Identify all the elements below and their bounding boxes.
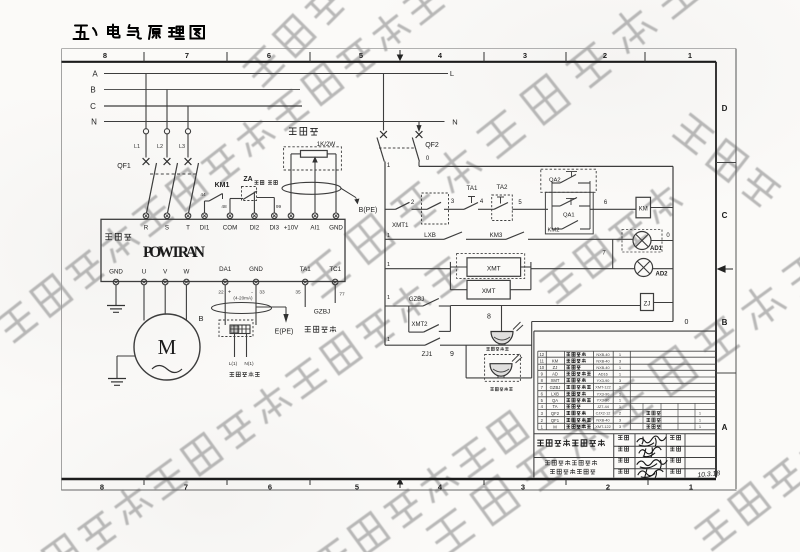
svg-text:M: M: [158, 335, 177, 359]
svg-text:5: 5: [359, 51, 363, 60]
svg-text:B: B: [722, 318, 728, 327]
svg-text:GND: GND: [109, 269, 123, 276]
svg-text:QA2: QA2: [549, 178, 561, 184]
svg-text:COM: COM: [223, 225, 237, 232]
svg-text:9: 9: [541, 371, 544, 376]
svg-text:N: N: [91, 118, 97, 127]
svg-text:8: 8: [487, 314, 491, 321]
svg-text:S: S: [165, 225, 169, 232]
svg-text:33: 33: [259, 290, 265, 296]
svg-text:KM3: KM3: [490, 232, 503, 239]
svg-text:3: 3: [619, 424, 622, 429]
svg-text:2: 2: [603, 51, 607, 60]
svg-text:5: 5: [518, 200, 522, 206]
svg-text:NXB-40: NXB-40: [596, 366, 609, 370]
svg-text:1: 1: [688, 51, 692, 60]
svg-text:3: 3: [521, 483, 525, 492]
svg-text:0: 0: [666, 233, 670, 239]
svg-text:ZJ: ZJ: [644, 302, 651, 308]
svg-text:TA1: TA1: [467, 185, 478, 192]
svg-text:AD2: AD2: [655, 272, 668, 278]
svg-text:AI1: AI1: [310, 225, 320, 232]
svg-text:QF2: QF2: [551, 411, 560, 416]
svg-text:A: A: [92, 70, 98, 79]
svg-text:TC1: TC1: [329, 266, 341, 273]
svg-text:DI1: DI1: [200, 225, 210, 232]
svg-text:U: U: [142, 269, 146, 276]
svg-text:22: 22: [218, 290, 224, 296]
svg-text:KM2: KM2: [548, 228, 560, 234]
svg-text:POWTRAN: POWTRAN: [143, 244, 205, 261]
svg-text:1: 1: [619, 398, 622, 403]
svg-text:4: 4: [541, 404, 544, 409]
svg-text:JZ7-44: JZ7-44: [597, 405, 609, 409]
svg-text:GZBJ: GZBJ: [409, 297, 424, 303]
svg-text:T: T: [186, 225, 190, 232]
svg-text:8: 8: [103, 51, 107, 60]
svg-text:B: B: [90, 86, 95, 95]
svg-text:1: 1: [387, 233, 390, 239]
svg-text:3: 3: [541, 411, 544, 416]
svg-text:7: 7: [541, 385, 544, 390]
svg-text:QF1: QF1: [551, 418, 560, 423]
svg-text:XMT: XMT: [482, 288, 496, 295]
svg-text:QF2: QF2: [425, 142, 439, 149]
svg-text:TA2: TA2: [497, 184, 508, 191]
svg-text:KM: KM: [639, 207, 648, 213]
svg-text:77: 77: [339, 292, 345, 298]
svg-text:AD: AD: [552, 371, 558, 376]
svg-text:B(PE): B(PE): [359, 207, 378, 214]
svg-text:48: 48: [221, 204, 227, 210]
svg-text:DA1: DA1: [219, 266, 232, 273]
svg-text:XMT-122: XMT-122: [595, 386, 610, 390]
svg-text:TA1: TA1: [300, 266, 311, 273]
svg-text:1: 1: [387, 337, 390, 343]
svg-text:3: 3: [619, 418, 622, 423]
svg-text:LXB: LXB: [551, 392, 559, 397]
svg-text:YX3-90: YX3-90: [597, 379, 610, 383]
svg-text:99: 99: [276, 204, 282, 210]
svg-text:N(1): N(1): [244, 361, 254, 367]
svg-text:+10V: +10V: [284, 225, 299, 232]
svg-text:GND: GND: [249, 266, 263, 273]
svg-text:8: 8: [100, 483, 104, 492]
svg-text:1: 1: [387, 295, 390, 301]
svg-text:3: 3: [619, 378, 622, 383]
svg-text:0: 0: [685, 319, 689, 326]
svg-text:5: 5: [355, 483, 359, 492]
svg-text:XMT1: XMT1: [392, 222, 409, 229]
svg-text:1: 1: [699, 411, 702, 416]
svg-text:6: 6: [267, 51, 271, 60]
svg-text:5: 5: [541, 398, 544, 403]
svg-text:44: 44: [200, 192, 206, 198]
svg-text:QA: QA: [552, 398, 558, 403]
svg-text:KM: KM: [552, 359, 559, 364]
svg-text:(4-20mA): (4-20mA): [233, 296, 253, 301]
svg-text:C: C: [90, 102, 96, 111]
svg-text:9: 9: [450, 351, 454, 358]
svg-text:C: C: [722, 211, 728, 220]
svg-text:QA1: QA1: [563, 213, 575, 219]
svg-text:GZBJ: GZBJ: [314, 309, 331, 316]
svg-text:E(PE): E(PE): [275, 329, 294, 336]
svg-text:7: 7: [184, 483, 188, 492]
svg-text:W: W: [183, 269, 189, 276]
svg-text:XMT: XMT: [551, 378, 560, 383]
svg-text:10.3.18: 10.3.18: [697, 470, 720, 479]
svg-text:XMT2: XMT2: [411, 322, 428, 328]
svg-text:6: 6: [268, 483, 272, 492]
svg-text:DI3: DI3: [269, 225, 279, 232]
svg-text:B: B: [198, 314, 203, 323]
svg-text:1: 1: [541, 424, 544, 429]
svg-text:XMT: XMT: [487, 266, 501, 273]
svg-text:1: 1: [699, 424, 702, 429]
svg-text:L(1): L(1): [229, 361, 238, 367]
svg-text:2: 2: [619, 411, 622, 416]
svg-text:AD16: AD16: [598, 372, 608, 376]
svg-text:1: 1: [699, 418, 702, 423]
svg-text:NXB-40: NXB-40: [596, 419, 609, 423]
svg-text:GND: GND: [329, 225, 343, 232]
svg-text:11: 11: [540, 359, 545, 364]
svg-text:8: 8: [541, 378, 544, 383]
svg-text:L2: L2: [157, 144, 163, 150]
svg-text:LXB: LXB: [424, 232, 436, 239]
svg-text:10: 10: [539, 365, 544, 370]
svg-text:L1: L1: [134, 144, 140, 150]
svg-text:QF1: QF1: [117, 163, 131, 170]
svg-text:CJX2-12: CJX2-12: [596, 412, 611, 416]
svg-text:3: 3: [619, 358, 622, 363]
svg-text:1: 1: [619, 352, 622, 357]
svg-text:XMT-122: XMT-122: [595, 425, 610, 429]
svg-text:1: 1: [619, 365, 622, 370]
svg-text:2: 2: [541, 418, 544, 423]
svg-text:A: A: [722, 423, 728, 432]
svg-text:ZJ: ZJ: [553, 365, 558, 370]
svg-text:D: D: [722, 104, 728, 113]
svg-text:AD1: AD1: [650, 246, 663, 252]
svg-text:1: 1: [689, 483, 693, 492]
svg-text:YX3-90: YX3-90: [597, 392, 610, 396]
svg-text:6: 6: [604, 200, 608, 206]
svg-text:3: 3: [523, 51, 527, 60]
svg-text:R: R: [144, 225, 149, 232]
svg-text:1K/2W: 1K/2W: [317, 141, 336, 148]
svg-text:ZJ1: ZJ1: [422, 351, 433, 358]
svg-text:ZA: ZA: [243, 176, 252, 183]
svg-text:1: 1: [387, 262, 390, 268]
svg-text:1: 1: [619, 371, 622, 376]
svg-text:2: 2: [606, 483, 610, 492]
svg-text:L3: L3: [179, 144, 185, 150]
svg-text:L: L: [450, 69, 454, 78]
svg-text:YX3-90: YX3-90: [597, 399, 610, 403]
svg-text:NXB-40: NXB-40: [596, 353, 609, 357]
svg-text:DI2: DI2: [250, 225, 260, 232]
svg-text:+: +: [228, 290, 231, 296]
svg-text:6: 6: [541, 392, 544, 397]
svg-text:7: 7: [185, 51, 189, 60]
svg-text:N: N: [452, 118, 457, 127]
svg-text:M: M: [553, 424, 557, 429]
svg-text:GZBJ: GZBJ: [550, 385, 561, 390]
svg-text:KM1: KM1: [215, 182, 230, 189]
svg-text:TA: TA: [552, 404, 557, 409]
svg-text:12: 12: [539, 352, 544, 357]
svg-text:NXB-40: NXB-40: [596, 359, 609, 363]
svg-text:35: 35: [295, 290, 301, 296]
